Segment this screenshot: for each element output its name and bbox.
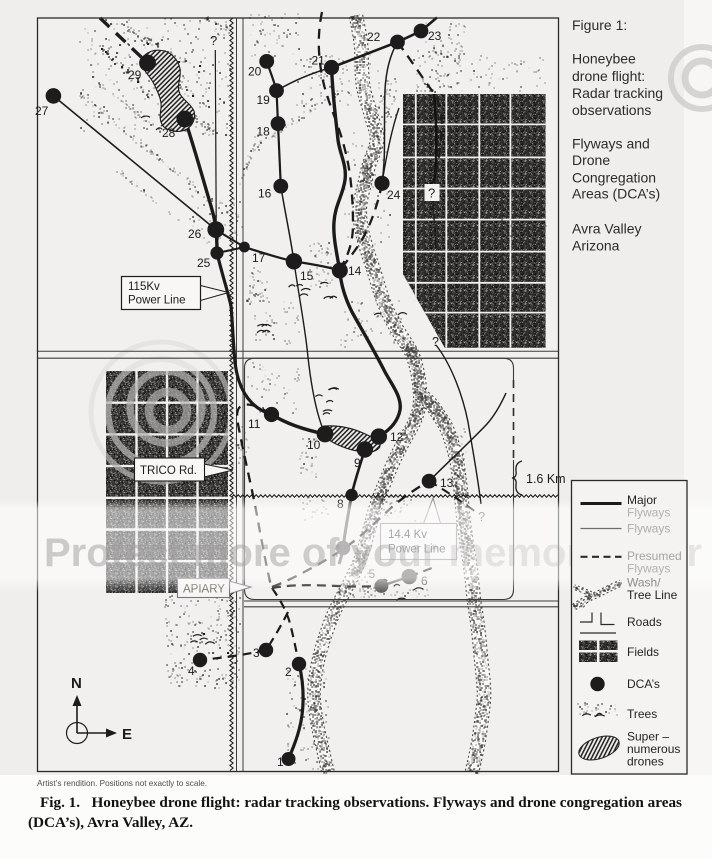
- svg-text:Avra Valley: Avra Valley: [572, 221, 642, 237]
- svg-text:Drone: Drone: [572, 152, 610, 168]
- svg-text:Flyways: Flyways: [627, 506, 670, 520]
- svg-text:Figure 1:: Figure 1:: [572, 17, 627, 33]
- svg-text:drones: drones: [627, 755, 664, 769]
- svg-text:Congregation: Congregation: [572, 170, 656, 186]
- svg-text:24: 24: [387, 188, 401, 202]
- svg-text:Tree Line: Tree Line: [627, 588, 678, 602]
- svg-text:Radar tracking: Radar tracking: [572, 85, 663, 101]
- svg-text:Artist’s rendition. Positions: Artist’s rendition. Positions not exactl…: [37, 779, 207, 788]
- svg-text:2: 2: [285, 665, 292, 679]
- svg-text:12: 12: [390, 430, 404, 444]
- svg-text:16: 16: [258, 187, 272, 201]
- svg-text:E: E: [122, 726, 132, 743]
- svg-text:Fields: Fields: [627, 645, 659, 659]
- svg-text:drone flight:: drone flight:: [572, 68, 645, 84]
- svg-text:(DCA’s), Avra Valley, AZ.: (DCA’s), Avra Valley, AZ.: [28, 814, 193, 831]
- svg-text:?: ?: [428, 186, 435, 201]
- svg-text:Fig. 1. Honeybee drone flight: Fig. 1. Honeybee drone flight: radar tra…: [40, 794, 682, 811]
- svg-text:29: 29: [128, 68, 142, 82]
- svg-text:Flyways and: Flyways and: [572, 135, 650, 151]
- svg-text:Arizona: Arizona: [572, 237, 620, 253]
- svg-text:17: 17: [252, 251, 266, 265]
- svg-text:115Kv: 115Kv: [128, 281, 160, 293]
- svg-text:Roads: Roads: [627, 615, 662, 629]
- svg-text:Flyways: Flyways: [627, 562, 670, 576]
- svg-text:Areas (DCA’s): Areas (DCA’s): [572, 186, 660, 202]
- svg-text:23: 23: [428, 29, 442, 43]
- svg-text:?: ?: [210, 33, 217, 48]
- svg-text:15: 15: [300, 269, 314, 283]
- svg-text:18: 18: [257, 125, 271, 139]
- svg-text:9: 9: [354, 456, 361, 470]
- svg-text:26: 26: [188, 227, 202, 241]
- svg-text:TRICO Rd.: TRICO Rd.: [140, 465, 197, 477]
- svg-text:1.6 Km: 1.6 Km: [526, 472, 566, 486]
- svg-text:observations: observations: [572, 102, 651, 118]
- svg-text:Trees: Trees: [627, 707, 657, 721]
- svg-text:1: 1: [277, 755, 284, 769]
- svg-text:28: 28: [162, 126, 176, 140]
- svg-text:13: 13: [440, 476, 454, 490]
- svg-text:25: 25: [197, 256, 211, 270]
- svg-text:21: 21: [312, 54, 326, 68]
- svg-text:20: 20: [248, 65, 262, 79]
- svg-text:14: 14: [348, 264, 362, 278]
- svg-text:3: 3: [253, 646, 260, 660]
- svg-text:10: 10: [307, 438, 321, 452]
- svg-text:N: N: [71, 675, 82, 692]
- svg-text:Honeybee: Honeybee: [572, 51, 636, 67]
- svg-text:DCA’s: DCA’s: [627, 677, 660, 691]
- svg-text:Flyways: Flyways: [627, 522, 670, 536]
- svg-text:4: 4: [188, 664, 195, 678]
- svg-text:19: 19: [257, 93, 271, 107]
- svg-text:11: 11: [248, 417, 261, 431]
- svg-text:?: ?: [432, 335, 439, 349]
- svg-text:Power Line: Power Line: [128, 295, 186, 307]
- svg-text:22: 22: [367, 30, 381, 44]
